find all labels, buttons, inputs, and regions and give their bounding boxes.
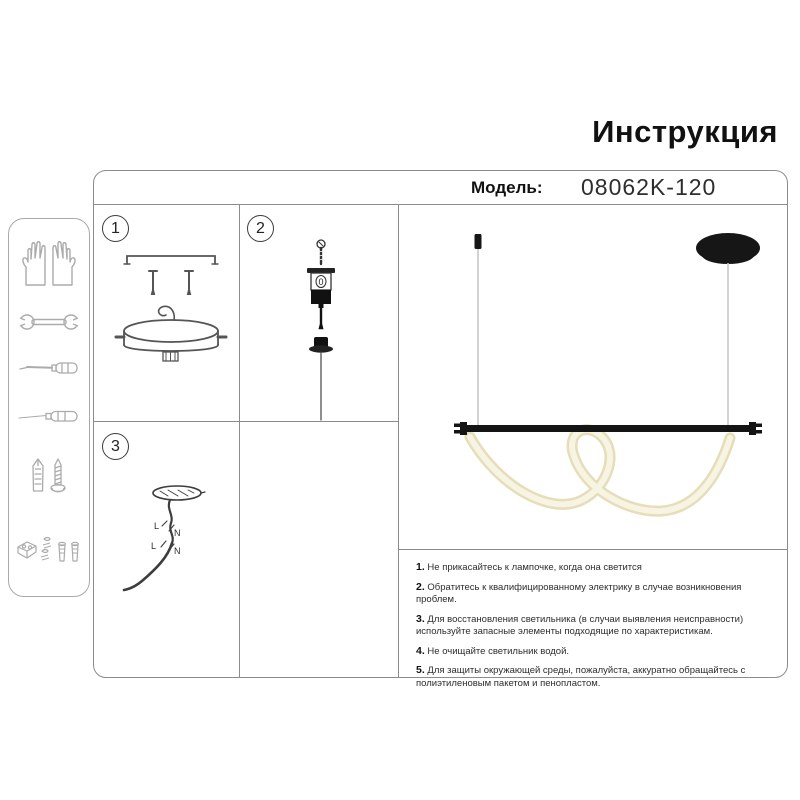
wire-label-n1: N [174, 528, 181, 538]
warning-2: 2. Обратитесь к квалифицированному элект… [416, 581, 782, 607]
step-1-canopy-mounting-diagram [94, 234, 239, 419]
anchor-screw-icon [27, 457, 71, 503]
warning-1-text: Не прикасайтесь к лампочке, когда она св… [427, 562, 641, 573]
warning-3: 3. Для восстановления светильника (в слу… [416, 613, 782, 639]
wire-label-n2: N [174, 546, 181, 556]
awl-icon [18, 407, 80, 425]
page-title: Инструкция [592, 114, 778, 150]
pendant-lamp-product-image [398, 204, 787, 549]
wire-label-l1: L [154, 521, 159, 531]
warning-3-number: 3. [416, 613, 425, 625]
screwdriver-icon [18, 359, 80, 377]
lamp-bar [454, 422, 762, 435]
warning-4-number: 4. [416, 645, 425, 657]
step-3-wiring-diagram: L N L N [94, 441, 239, 671]
wire-ceiling-tip [475, 234, 482, 249]
led-rope [470, 430, 730, 511]
model-label: Модель: [471, 178, 542, 198]
gloves-icon [20, 237, 78, 287]
mounting-hardware-icon [16, 531, 82, 569]
wrench-icon [18, 311, 80, 333]
wire-label-l2: L [151, 541, 156, 551]
instruction-sheet: Модель: 08062K-120 1 2 3 [93, 170, 788, 678]
gripper-zero-marking: 0 [318, 277, 323, 287]
warning-4-text: Не очищайте светильник водой. [427, 646, 569, 657]
warning-2-number: 2. [416, 581, 425, 593]
warning-1-number: 1. [416, 561, 425, 573]
warning-5-number: 5. [416, 664, 425, 676]
grid-divider-horizontal-right [398, 549, 787, 550]
warning-5-text: Для защиты окружающей среды, пожалуйста,… [416, 665, 745, 689]
tools-sidebar [8, 218, 90, 597]
warning-1: 1. Не прикасайтесь к лампочке, когда она… [416, 561, 782, 575]
safety-warnings: 1. Не прикасайтесь к лампочке, когда она… [416, 561, 782, 696]
warning-5: 5. Для защиты окружающей среды, пожалуйс… [416, 664, 782, 690]
warning-2-text: Обратитесь к квалифицированному электрик… [416, 582, 741, 606]
model-number: 08062K-120 [581, 174, 716, 201]
ceiling-canopy [696, 233, 760, 264]
warning-4: 4. Не очищайте светильник водой. [416, 645, 782, 659]
warning-3-text: Для восстановления светильника (в случаи… [416, 614, 743, 638]
step-2-cable-gripper-diagram: 0 [239, 234, 398, 434]
